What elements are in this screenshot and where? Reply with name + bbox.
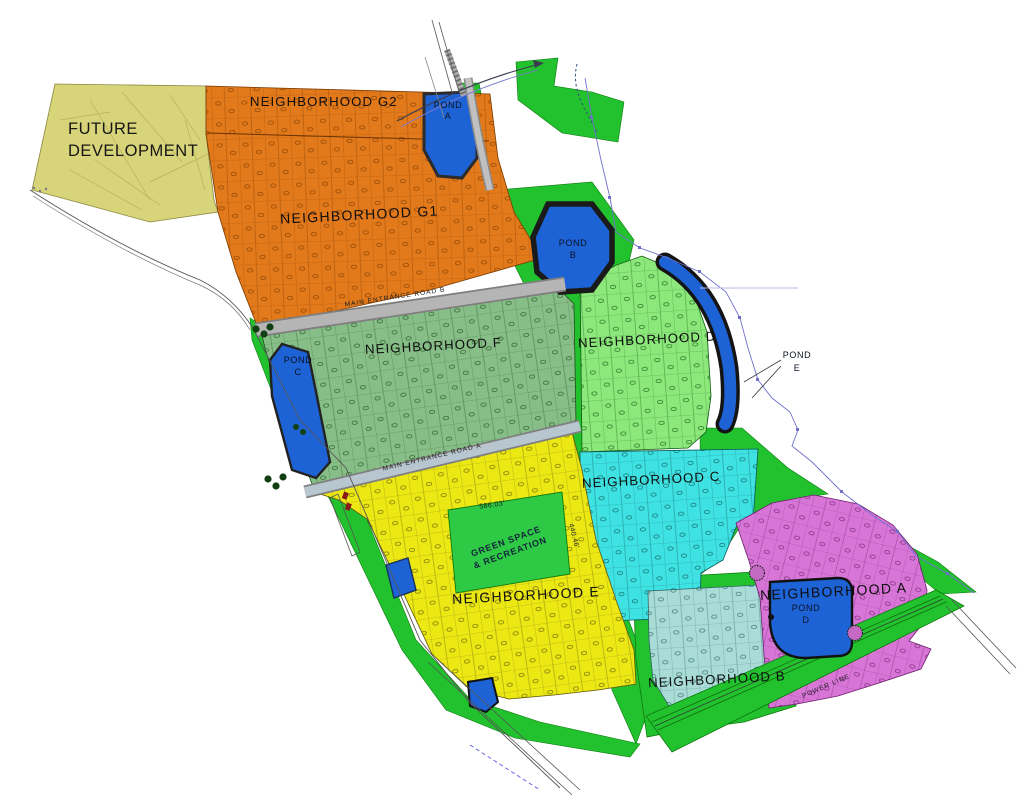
site-plan-stage: FUTURE DEVELOPMENT NEIGHBORHOOD G2 NEIGH… — [0, 0, 1024, 812]
pond-e-label-line2: E — [794, 363, 801, 373]
neighborhood-g2-label: NEIGHBORHOOD G2 — [250, 94, 398, 109]
pond-b-water — [533, 204, 612, 292]
neighborhood-a-survey-dot — [768, 614, 774, 620]
pond-c-south-tree-cluster — [264, 473, 286, 489]
green-top-right-blob — [516, 58, 624, 142]
site-plan-map: FUTURE DEVELOPMENT NEIGHBORHOOD G2 NEIGH… — [0, 0, 1024, 812]
pond-e-label-line1: POND — [783, 350, 811, 360]
pond-a-label-line1: POND — [434, 100, 462, 110]
future-development-label-line1: FUTURE — [68, 120, 138, 138]
southeast-powerline-continuation — [946, 600, 1016, 674]
future-development-label-line2: DEVELOPMENT — [68, 142, 198, 160]
pond-c-label-line1: POND — [284, 355, 312, 365]
pond-d-label-line2: D — [802, 615, 809, 625]
small-pond-south-icon — [468, 678, 498, 712]
pond-c-label-line2: C — [294, 367, 301, 377]
pond-a-label-line2: A — [445, 111, 452, 121]
pond-b-label-line2: B — [570, 250, 577, 260]
southwest-blue-dashed — [470, 745, 540, 790]
pond-e-leader-line — [744, 360, 781, 398]
north-double-line-1 — [432, 20, 459, 92]
pond-b-label-line1: POND — [559, 238, 587, 248]
pond-d-label-line1: POND — [792, 603, 820, 613]
